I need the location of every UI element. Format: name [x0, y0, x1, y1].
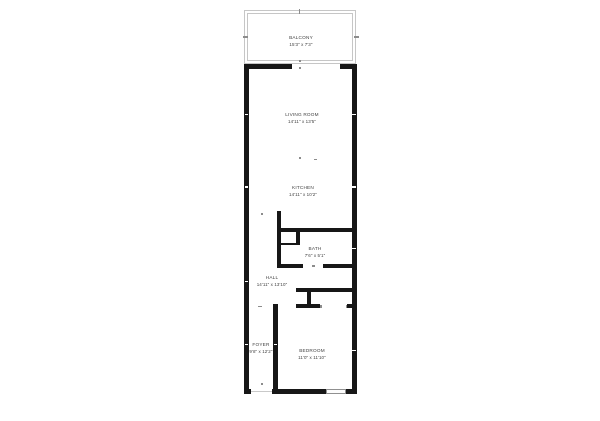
room-name: LIVING ROOM: [255, 112, 349, 118]
room-label-text: HALL14'11" x 13'10": [225, 275, 319, 287]
room-label-living-room: LIVING ROOM14'11" x 13'5": [202, 112, 402, 139]
mark-balcony-top-tick: [299, 9, 301, 14]
room-name: KITCHEN: [256, 185, 350, 191]
room-label-text: BEDROOM11'0" x 11'10": [265, 348, 359, 360]
wall-bottom-left-stub: [244, 389, 251, 394]
room-dimensions: 7'6" x 5'1": [268, 252, 362, 258]
wall-bottom-mid: [272, 389, 326, 394]
mark-closet-opening-tick-1: [320, 305, 322, 308]
mark-entry-tick: [261, 383, 263, 385]
room-dimensions: 14'11" x 13'5": [255, 118, 349, 124]
wall-living-top-left: [244, 64, 292, 69]
room-label-hall: HALL14'11" x 13'10": [172, 275, 372, 302]
room-label-text: KITCHEN14'11" x 10'2": [256, 185, 350, 197]
bedroom-window: [326, 389, 346, 393]
room-label-text: LIVING ROOM14'11" x 13'5": [255, 112, 349, 124]
wall-bath-top: [277, 228, 357, 232]
room-dimensions: 11'0" x 11'10": [265, 354, 359, 360]
mark-balcony-door-dot-2: [299, 67, 301, 69]
room-label-text: BALCONY15'3" x 7'3": [254, 35, 348, 47]
floor-plan-canvas: BALCONY15'3" x 7'3"LIVING ROOM14'11" x 1…: [0, 0, 600, 421]
room-name: BATH: [268, 246, 362, 252]
floor-plan: BALCONY15'3" x 7'3"LIVING ROOM14'11" x 1…: [0, 0, 600, 421]
mark-kitchen-dash: [314, 159, 318, 161]
room-label-text: BATH7'6" x 5'1": [268, 246, 362, 258]
mark-closet-opening-tick-2: [346, 305, 348, 308]
wall-bedroom-top-right: [347, 304, 357, 308]
entry-door-line: [251, 391, 272, 392]
room-label-bedroom: BEDROOM11'0" x 11'10": [212, 348, 412, 375]
room-dimensions: 14'11" x 13'10": [225, 281, 319, 287]
mark-hall-dot: [261, 213, 263, 215]
mark-foyer-corner-mark: [258, 306, 262, 307]
wall-bedroom-top-left: [296, 304, 320, 308]
room-dimensions: 15'3" x 7'3": [254, 41, 348, 47]
mark-kitchen-dot-1: [299, 157, 301, 159]
room-label-balcony: BALCONY15'3" x 7'3": [201, 35, 401, 62]
room-name: HALL: [225, 275, 319, 281]
room-label-kitchen: KITCHEN14'11" x 10'2": [203, 185, 403, 212]
room-label-bath: BATH7'6" x 5'1": [215, 246, 415, 273]
room-name: BEDROOM: [265, 348, 359, 354]
room-dimensions: 14'11" x 10'2": [256, 191, 350, 197]
wall-bottom-right: [346, 389, 357, 394]
